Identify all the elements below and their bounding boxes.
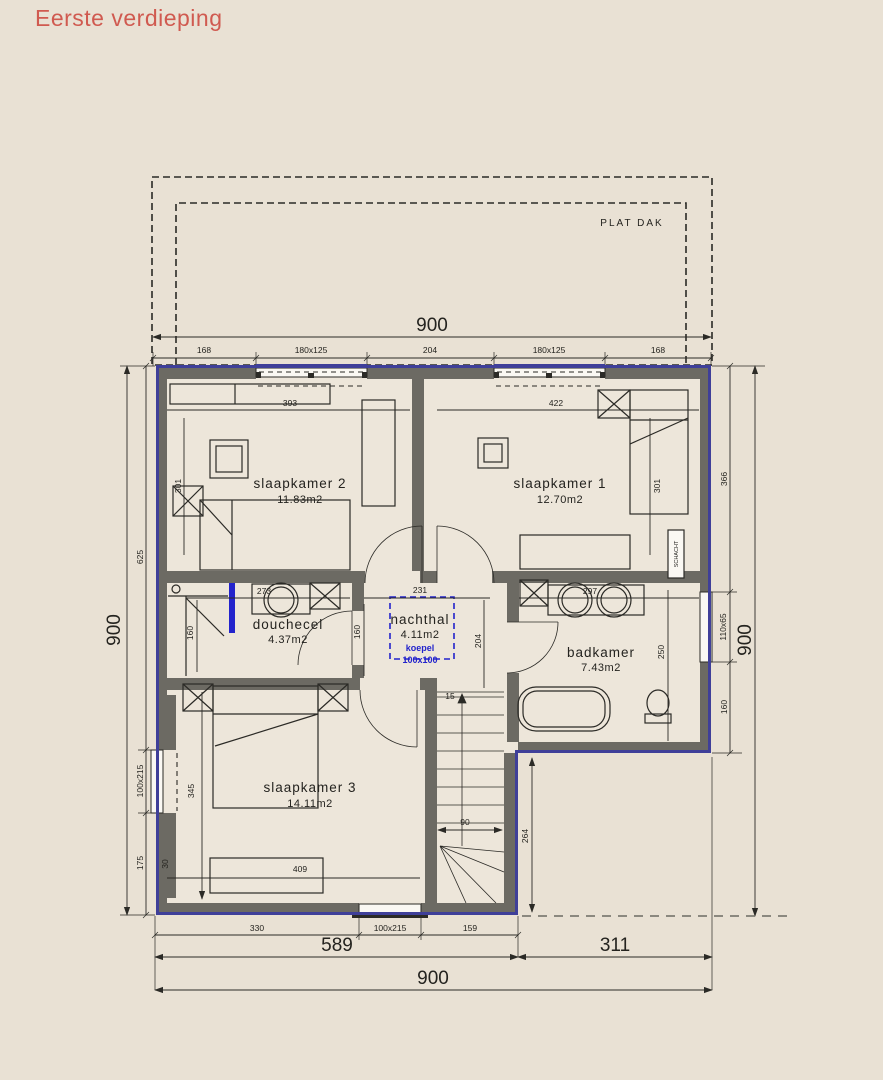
shower-door-blue	[229, 583, 235, 633]
dim-bottom-overall: 900	[417, 968, 449, 989]
dim-right-seg-window: 110x65	[718, 613, 728, 641]
room-label-slaapkamer1: slaapkamer 1	[513, 476, 606, 491]
dim-left-overall: 900	[104, 614, 125, 646]
dim-bottom-seg-159: 159	[463, 923, 477, 933]
roof-seg-204: 204	[423, 345, 437, 355]
room-area-badkamer: 7.43m2	[581, 662, 621, 674]
koepel-label: koepel	[406, 643, 435, 653]
dim-douchecel-width: 273	[257, 586, 271, 596]
roof-seg-168-right: 168	[651, 345, 665, 355]
roof-seg-168-left: 168	[197, 345, 211, 355]
dim-sk1-width: 422	[549, 398, 563, 408]
room-area-slaapkamer3: 14.11m2	[287, 798, 333, 810]
room-label-slaapkamer3: slaapkamer 3	[263, 780, 356, 795]
dim-nachthal-right: 204	[473, 634, 483, 648]
dim-right-overall: 900	[735, 624, 756, 656]
dim-stairs-width: 90	[460, 817, 470, 827]
roof-seg-window-left: 180x125	[295, 345, 328, 355]
roof-label: PLAT DAK	[600, 218, 663, 229]
dim-sk3-width: 409	[293, 864, 307, 874]
room-area-slaapkamer1: 12.70m2	[537, 494, 583, 506]
room-area-nachthal: 4.11m2	[401, 629, 440, 641]
dim-sk2-depth: 301	[173, 479, 183, 493]
roof-seg-window-right: 180x125	[533, 345, 566, 355]
page-title: Eerste verdieping	[35, 5, 223, 31]
nightstand	[478, 438, 508, 468]
dim-right-seg-160: 160	[719, 700, 729, 714]
dim-sk3-depth: 345	[186, 784, 196, 798]
dim-sk1-depth: 301	[652, 479, 662, 493]
room-label-douchecel: douchecel	[253, 617, 324, 632]
dim-sk2-width: 393	[283, 398, 297, 408]
room-area-slaapkamer2: 11.83m2	[277, 494, 323, 506]
dim-nachthal-left: 160	[352, 625, 362, 639]
dim-left-seg-625: 625	[135, 550, 145, 564]
dim-nachthal-width: 231	[413, 585, 427, 595]
roof-dim-overall: 900	[416, 315, 448, 336]
dim-badkamer-depth: 250	[656, 645, 666, 659]
dim-wall-note: 30	[160, 859, 170, 869]
dim-bottom-right: 311	[600, 935, 630, 956]
dim-shower-height: 160	[185, 626, 195, 640]
dim-right-seg-366: 366	[719, 472, 729, 486]
koepel-size-label: 100x100	[402, 655, 437, 665]
room-area-douchecel: 4.37m2	[268, 634, 308, 646]
floor-plan-drawing: Eerste verdieping PLAT DAK 900 168 180x1…	[0, 0, 883, 1080]
room-label-badkamer: badkamer	[567, 645, 635, 660]
dim-notch-depth: 264	[520, 829, 530, 843]
dim-left-seg-window: 100x215	[135, 764, 145, 797]
room-label-slaapkamer2: slaapkamer 2	[253, 476, 346, 491]
shaft-label: SCHACHT	[674, 540, 680, 567]
room-label-nachthal: nachthal	[390, 612, 449, 627]
dim-bottom-left: 589	[321, 935, 353, 956]
dim-bottom-seg-window: 100x215	[374, 923, 407, 933]
dim-bottom-seg-330: 330	[250, 923, 264, 933]
dim-badkamer-width: 297	[583, 586, 597, 596]
dim-left-seg-175: 175	[135, 856, 145, 870]
dim-stairs-first-step: 15	[445, 691, 455, 701]
